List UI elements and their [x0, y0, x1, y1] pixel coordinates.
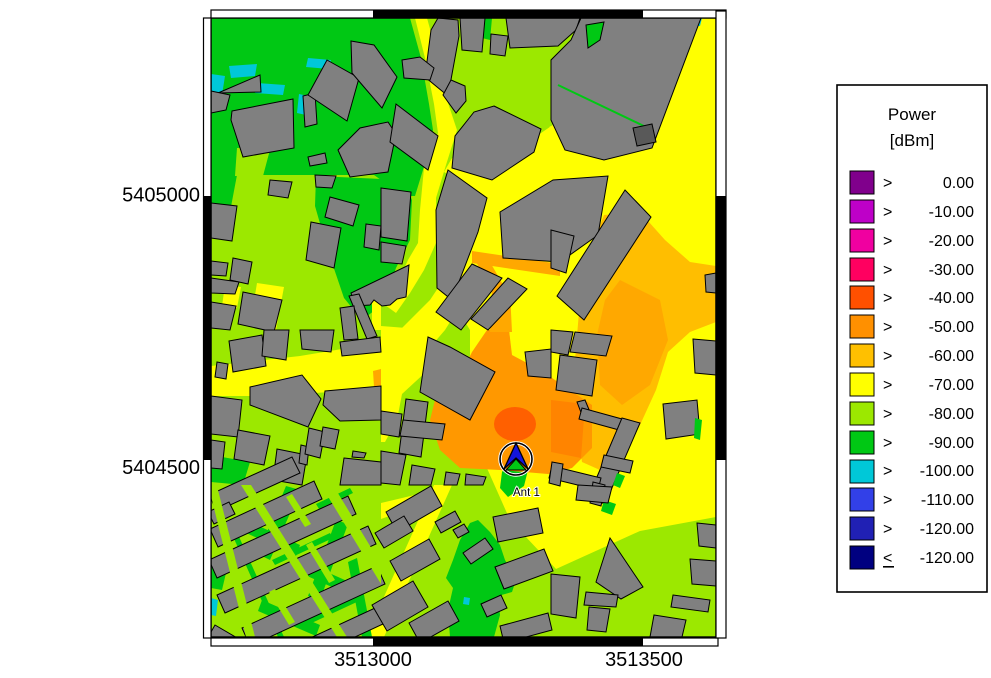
svg-text:>: > [883, 204, 892, 221]
svg-text:>: > [883, 435, 892, 452]
svg-text:>: > [883, 262, 892, 279]
svg-text:-20.00: -20.00 [929, 233, 974, 250]
svg-text:3513500: 3513500 [605, 649, 683, 671]
svg-text:>: > [883, 175, 892, 192]
svg-text:0.00: 0.00 [943, 175, 974, 192]
svg-text:>: > [883, 233, 892, 250]
svg-text:-100.00: -100.00 [920, 463, 974, 480]
svg-text:[dBm]: [dBm] [890, 131, 934, 150]
svg-text:-50.00: -50.00 [929, 319, 974, 336]
svg-text:Power: Power [888, 105, 937, 124]
svg-text:>: > [883, 463, 892, 480]
svg-text:-60.00: -60.00 [929, 348, 974, 365]
svg-text:-70.00: -70.00 [929, 377, 974, 394]
svg-text:-30.00: -30.00 [929, 262, 974, 279]
svg-text:>: > [883, 521, 892, 538]
svg-text:-120.00: -120.00 [920, 550, 974, 567]
svg-text:5404500: 5404500 [122, 457, 200, 479]
svg-text:>: > [883, 377, 892, 394]
svg-text:Ant 1: Ant 1 [513, 487, 540, 499]
svg-text:>: > [883, 290, 892, 307]
svg-text:<: < [883, 550, 892, 567]
svg-text:>: > [883, 492, 892, 509]
svg-text:-110.00: -110.00 [921, 492, 974, 509]
svg-text:-90.00: -90.00 [929, 435, 974, 452]
svg-text:-80.00: -80.00 [929, 406, 974, 423]
svg-text:>: > [883, 319, 892, 336]
svg-text:-40.00: -40.00 [929, 290, 974, 307]
svg-text:>: > [883, 406, 892, 423]
svg-text:-120.00: -120.00 [920, 521, 974, 538]
svg-text:-10.00: -10.00 [929, 204, 974, 221]
svg-text:>: > [883, 348, 892, 365]
svg-text:3513000: 3513000 [334, 649, 412, 671]
svg-text:5405000: 5405000 [122, 185, 200, 207]
